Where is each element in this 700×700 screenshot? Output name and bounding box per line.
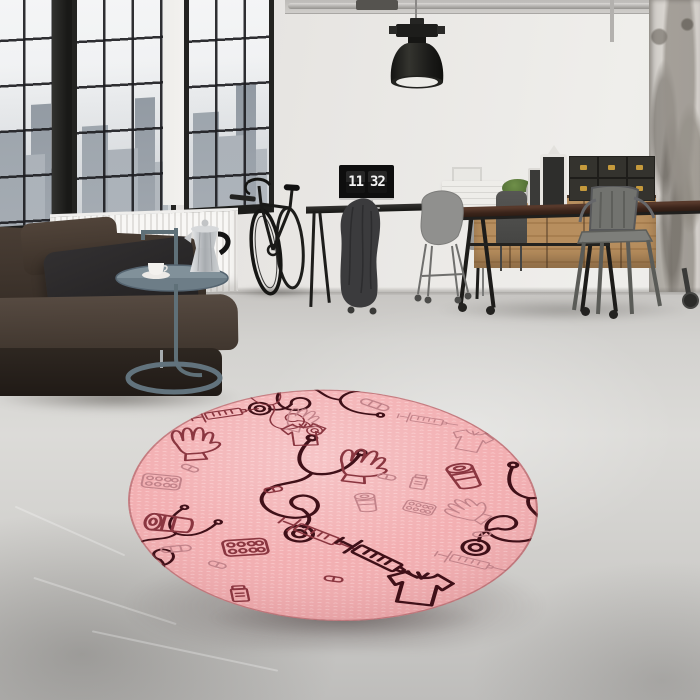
chair-foot [465,293,472,300]
moka-bottom [190,248,220,272]
cart-caster [682,292,699,309]
loft-room-photo: 11 32 [0,0,700,700]
chair-caster [348,307,355,314]
handlebar [248,179,270,185]
cardigan-on-chair [331,197,407,315]
table-rod [176,284,202,375]
brass-clasp [636,165,643,170]
moka-lid [191,226,219,233]
wall-pier [163,0,186,205]
monitor-flip-clock: 11 32 [339,165,394,200]
chair-shell [421,191,463,245]
moka-handle [218,234,228,253]
bike-frame [259,186,292,250]
chair-backrest [590,186,638,230]
chair-foot [425,297,432,304]
table-caster [486,306,495,315]
chair-foot [415,295,422,302]
side-table [110,218,260,403]
lamp-lug-right [437,26,445,34]
lamp-neck [408,37,426,43]
candle-lantern-large [540,154,567,210]
chair-wire-legs [418,244,468,296]
pendant-lamp [384,18,450,90]
moka-knob [202,220,209,227]
brass-clasp [580,165,587,170]
lantern-top [548,145,560,154]
chair-seat [578,230,652,243]
pipe-valve [356,0,398,10]
lamp-fixture [396,24,438,37]
metal-armchair [568,186,664,318]
metal-chair-leg [500,245,502,271]
clock-minutes: 32 [368,171,387,193]
handlebar-drop [246,182,250,194]
chair-foot [455,297,462,304]
wall-mount-rack [229,194,255,202]
saddle [284,184,300,191]
ceiling-pipe [288,3,700,9]
chair-caster [370,308,377,315]
medical-pattern-rug [119,380,547,632]
vertical-conduit [610,0,614,42]
lamp-diffuser [396,77,438,87]
rug-graphic [119,380,547,631]
metal-chair-leg [520,245,522,271]
wire-shell-chair [412,188,474,306]
window-mullions [77,0,171,222]
window-frame-column [52,0,74,223]
cardigan-body [340,198,380,307]
clock-hours: 11 [346,171,365,193]
lamp-cap [410,18,424,25]
moka-spout [184,232,192,243]
factory-window-2 [72,0,176,231]
chair-legs [574,240,660,314]
moka-top [192,230,218,248]
lamp-lug-left [389,26,397,34]
brass-clasp [608,165,615,170]
